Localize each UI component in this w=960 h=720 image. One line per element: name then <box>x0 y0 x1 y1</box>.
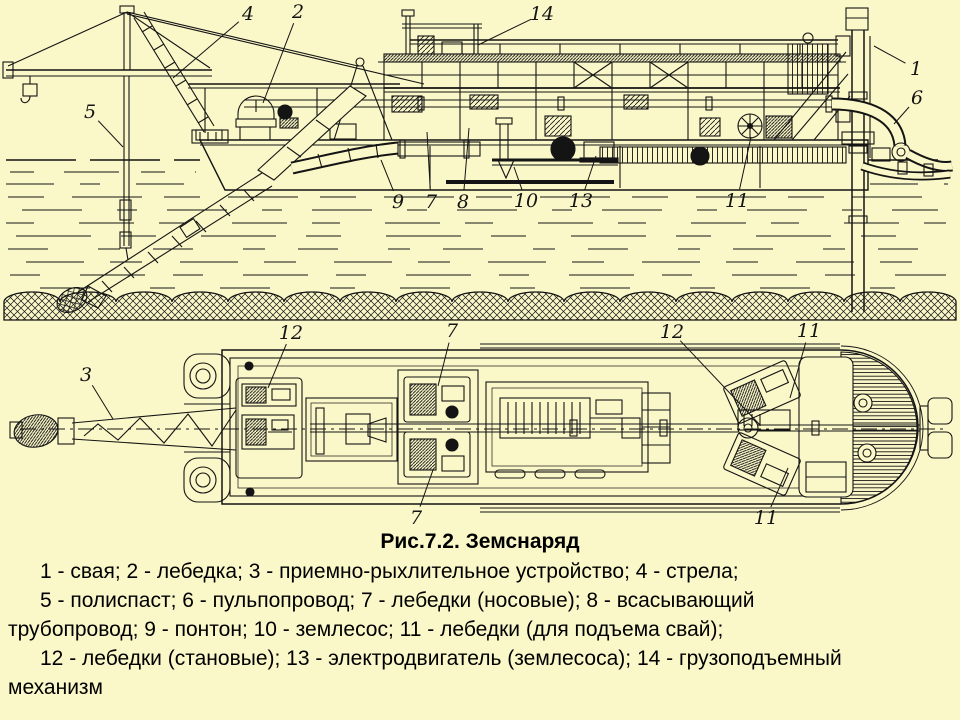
figure-7-2: 421416597810131131271211711 Рис.7.2. Зем… <box>0 0 960 720</box>
callout-leader-7 <box>427 132 430 190</box>
callout-leader-9 <box>381 160 393 191</box>
callout-leader-11 <box>771 468 788 507</box>
callout-number-12: 12 <box>279 322 303 344</box>
callout-leader-1 <box>874 46 905 63</box>
figure-title: Рис.7.2. Земснаряд <box>0 527 960 557</box>
callout-number-7: 7 <box>446 320 459 342</box>
callout-number-5: 5 <box>84 101 96 123</box>
figure-caption: Рис.7.2. Земснаряд 1 - свая; 2 - лебедка… <box>0 527 960 702</box>
callout-leader-4 <box>173 22 239 78</box>
figure-legend: 1 - свая; 2 - лебедка; 3 - приемно-рыхли… <box>0 557 960 702</box>
callout-number-13: 13 <box>569 190 593 212</box>
legend-line-2: 5 - полиспаст; 6 - пульпопровод; 7 - леб… <box>0 586 960 615</box>
callout-leader-11 <box>740 137 751 189</box>
callout-leader-8 <box>464 128 469 190</box>
callout-leader-2 <box>263 23 294 103</box>
callout-leader-7 <box>420 470 433 507</box>
legend-line-5: механизм <box>0 673 960 702</box>
callout-leader-13 <box>585 156 596 190</box>
legend-line-1: 1 - свая; 2 - лебедка; 3 - приемно-рыхли… <box>0 557 960 586</box>
callout-layer: 421416597810131131271211711 <box>0 0 960 530</box>
callout-leader-11 <box>790 343 806 398</box>
callout-number-4: 4 <box>241 3 254 25</box>
callout-number-1: 1 <box>910 58 922 80</box>
callout-number-11: 11 <box>725 190 749 212</box>
callout-number-11: 11 <box>754 507 778 529</box>
callout-leader-3 <box>92 385 113 419</box>
callout-number-11: 11 <box>797 320 821 342</box>
callout-leader-10 <box>514 167 522 190</box>
callout-number-12: 12 <box>660 321 684 343</box>
callout-number-9: 9 <box>392 191 404 213</box>
callout-leader-6 <box>894 107 909 124</box>
callout-number-10: 10 <box>514 190 538 212</box>
callout-number-8: 8 <box>457 191 469 213</box>
callout-leader-7 <box>438 343 449 386</box>
callout-number-14: 14 <box>530 3 554 25</box>
callout-leader-5 <box>98 121 123 147</box>
callout-number-7: 7 <box>410 507 423 529</box>
callout-number-6: 6 <box>911 87 923 109</box>
callout-number-3: 3 <box>80 364 92 386</box>
legend-line-3: трубопровод; 9 - понтон; 10 - землесос; … <box>0 615 960 644</box>
page: { "colors": { "background": "#faf7c8", "… <box>0 0 960 720</box>
legend-line-4: 12 - лебедки (становые); 13 - электродви… <box>0 644 960 673</box>
callout-leader-12 <box>268 344 286 388</box>
callout-number-7: 7 <box>425 191 438 213</box>
callout-number-2: 2 <box>291 1 304 23</box>
callout-leader-12 <box>680 341 760 425</box>
callout-leader-14 <box>478 19 531 45</box>
